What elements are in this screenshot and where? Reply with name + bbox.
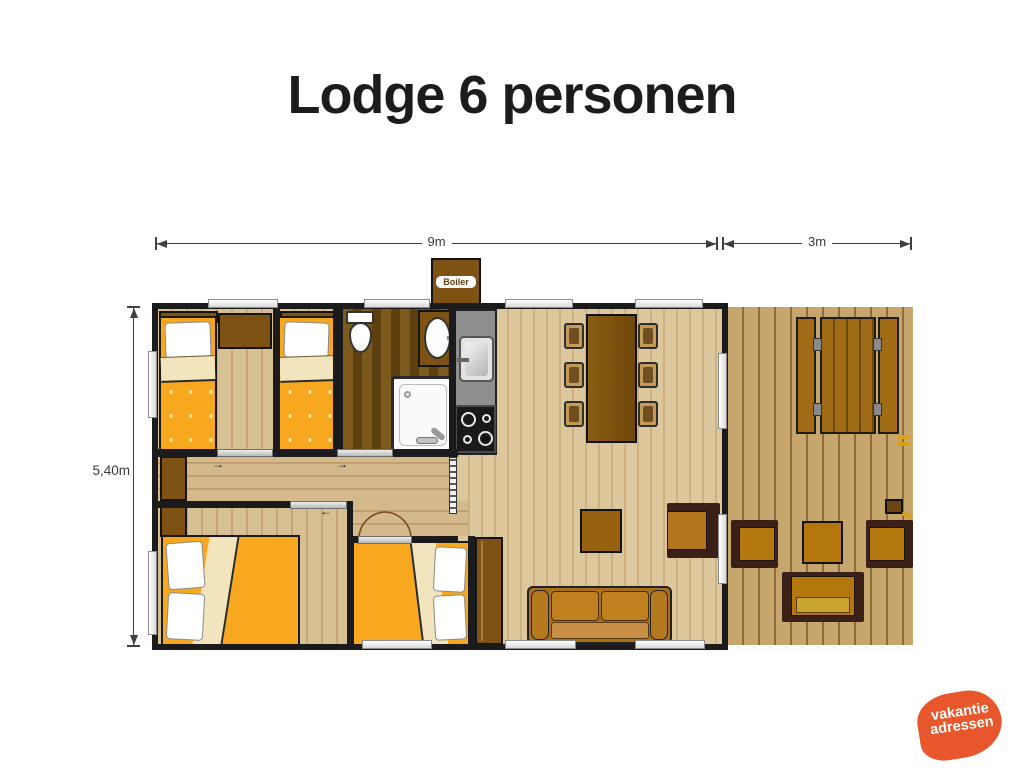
bench-connector (873, 403, 882, 416)
dimension-3m: 3m (722, 237, 912, 250)
dimension-tick (127, 645, 140, 647)
sofa-cushion (601, 591, 649, 621)
bench-connector (813, 403, 822, 416)
arrow-down-icon (130, 635, 138, 645)
door-threshold (358, 536, 412, 544)
wardrobe-door-line (481, 541, 483, 641)
sliding-door (217, 449, 273, 457)
sofa-cushion (551, 591, 599, 621)
picnic-table (820, 317, 876, 434)
dimension-tick (716, 237, 718, 250)
dimension-label: 3m (802, 234, 832, 249)
pillow (433, 546, 467, 593)
dimension-label: 9m (421, 234, 451, 249)
wall (412, 536, 458, 543)
window (505, 640, 576, 649)
bench-connector (813, 338, 822, 351)
pillow (283, 321, 329, 359)
slide-direction-arrow: → (336, 459, 348, 469)
outdoor-sofa (782, 572, 864, 622)
boiler: Boiler (431, 258, 481, 308)
deck-marker (898, 442, 909, 446)
sofa-arm (650, 590, 668, 640)
deck-planter (885, 499, 903, 514)
pillow (165, 541, 205, 590)
outdoor-armchair (731, 520, 778, 568)
picnic-bench (878, 317, 899, 434)
sliding-door (337, 449, 393, 457)
outdoor-table (802, 521, 843, 564)
blanket (161, 380, 215, 451)
pillow (433, 594, 467, 641)
dining-table (586, 314, 637, 443)
page-title: Lodge 6 personen (0, 64, 1024, 126)
window (635, 640, 705, 649)
burner-icon (461, 412, 476, 427)
coffee-table (580, 509, 622, 553)
window (364, 299, 430, 308)
blanket-fold (161, 355, 216, 383)
chair-cushion (869, 527, 905, 561)
outdoor-armchair (866, 520, 913, 568)
pillow (164, 321, 211, 359)
window (718, 353, 727, 429)
wall (333, 309, 343, 456)
dining-chair (564, 323, 584, 349)
wall (273, 309, 280, 456)
slide-direction-arrow: → (212, 459, 224, 469)
wall (273, 449, 337, 457)
wall (393, 449, 458, 457)
armchair (667, 503, 720, 558)
deck-marker (898, 435, 909, 439)
window (208, 299, 278, 308)
sofa-seat (551, 622, 649, 639)
burner-icon (463, 435, 472, 444)
dining-chair (564, 401, 584, 427)
vakantieadressen-logo: vakantie adressen (918, 692, 1002, 758)
arrow-left-icon (157, 240, 167, 248)
window (505, 299, 573, 308)
arrow-left-icon (724, 240, 734, 248)
faucet-icon (457, 358, 469, 362)
dining-chair (638, 362, 658, 388)
window (148, 351, 157, 418)
sofa-arm (531, 590, 549, 640)
cabinet (160, 456, 187, 501)
shower-icon (391, 376, 455, 454)
window (635, 299, 703, 308)
wall (347, 501, 353, 644)
single-bed-icon (159, 316, 217, 453)
dimension-tick (910, 237, 912, 250)
bench-connector (873, 338, 882, 351)
sofa-seat (796, 597, 850, 613)
arrow-up-icon (130, 308, 138, 318)
wardrobe (475, 537, 503, 645)
single-bed-icon (278, 316, 335, 453)
french-doors (358, 508, 412, 538)
dimension-9m: 9m (155, 237, 718, 250)
double-bed-icon (161, 535, 300, 646)
drain-icon (404, 391, 411, 398)
floorplan-canvas: Lodge 6 personen 9m 3m 5,40m Boiler (0, 0, 1024, 768)
blanket (280, 380, 333, 451)
dining-chair (638, 323, 658, 349)
dining-chair (638, 401, 658, 427)
cabinet (160, 506, 187, 537)
wall (449, 309, 456, 456)
sofa (527, 586, 672, 644)
dimension-label: 5,40m (84, 463, 130, 478)
armchair-cushion (667, 511, 707, 550)
boiler-label: Boiler (436, 276, 476, 288)
sliding-door (290, 501, 347, 509)
burner-icon (478, 431, 493, 446)
arrow-right-icon (900, 240, 910, 248)
blanket-fold (280, 355, 334, 383)
wall (158, 449, 217, 457)
double-bed-icon (352, 541, 470, 646)
kitchen-sink-icon (459, 336, 494, 382)
accordion-door (449, 457, 457, 514)
window (362, 640, 432, 649)
dining-chair (564, 362, 584, 388)
wall (158, 501, 290, 508)
nightstand (218, 313, 272, 349)
shower-hose-icon (416, 437, 438, 444)
patio-door (718, 514, 727, 584)
burner-icon (482, 414, 491, 423)
stove-icon (455, 405, 496, 453)
dimension-line (133, 306, 134, 647)
window (148, 551, 157, 635)
wall (468, 536, 475, 644)
hallway-floor (158, 456, 449, 501)
arrow-right-icon (706, 240, 716, 248)
picnic-bench (796, 317, 816, 434)
pillow (166, 592, 205, 641)
chair-cushion (739, 527, 775, 561)
slide-direction-arrow: ← (320, 506, 332, 516)
